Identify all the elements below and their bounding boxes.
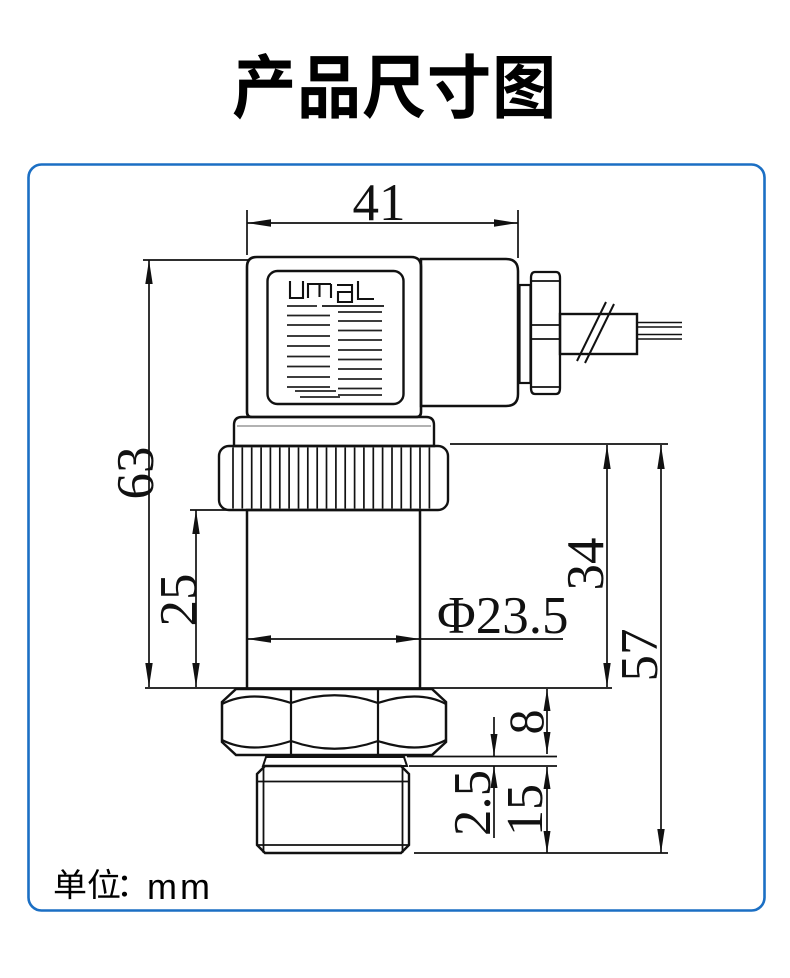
svg-text:15: 15 [497, 784, 554, 836]
svg-text:2.5: 2.5 [444, 770, 502, 836]
svg-text:41: 41 [353, 174, 406, 232]
svg-text:34: 34 [557, 538, 615, 591]
svg-text:63: 63 [107, 447, 165, 500]
svg-text:25: 25 [150, 574, 208, 627]
svg-text:mm: mm [147, 866, 213, 907]
svg-text:57: 57 [611, 629, 669, 682]
svg-text:Φ23.5: Φ23.5 [437, 587, 569, 645]
svg-text:8: 8 [498, 710, 554, 735]
